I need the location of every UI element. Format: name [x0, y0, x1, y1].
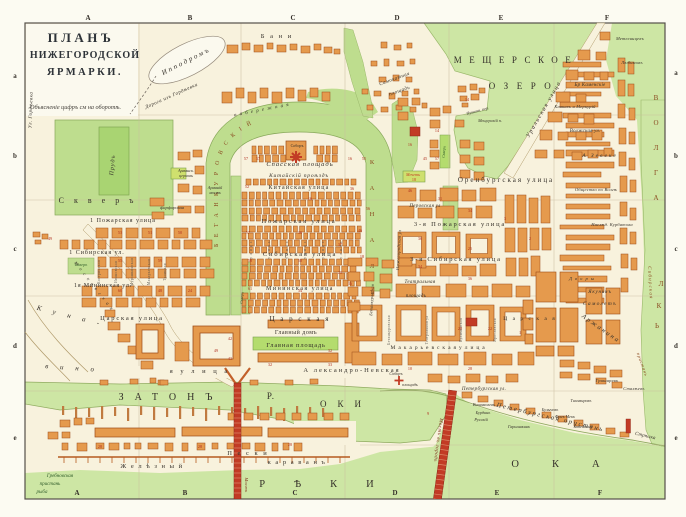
svg-text:Объясненіе цифръ см на оборотѣ: Объясненіе цифръ см на оборотѣ. — [30, 104, 121, 111]
svg-text:рыба: рыба — [36, 490, 48, 495]
svg-text:Наслѣд. Курбатова: Наслѣд. Курбатова — [590, 222, 633, 227]
svg-text:42: 42 — [228, 336, 232, 341]
svg-text:d: d — [674, 342, 678, 350]
svg-text:Вишомолевъ: Вишомолевъ — [473, 402, 496, 407]
svg-text:Ц а р с к а я: Ц а р с к а я — [270, 315, 331, 323]
svg-text:Гребновская: Гребновская — [46, 474, 74, 479]
svg-text:Костринская: Костринская — [97, 260, 101, 284]
svg-text:50: 50 — [178, 230, 182, 235]
svg-text:А Зевеке: А Зевеке — [581, 153, 618, 159]
svg-text:ЗАТОНЪ: ЗАТОНЪ — [119, 392, 224, 403]
svg-text:Любимовъ: Любимовъ — [620, 60, 643, 65]
svg-text:57: 57 — [244, 156, 248, 161]
svg-text:Русскій: Русскій — [473, 417, 488, 422]
svg-text:3-я Пожарская улица: 3-я Пожарская улица — [414, 221, 506, 228]
svg-text:ОЗЕРО: ОЗЕРО — [489, 81, 560, 91]
svg-text:1 Сибирская ул.: 1 Сибирская ул. — [69, 249, 125, 256]
svg-text:18: 18 — [360, 254, 364, 259]
svg-text:Бетанкуровская: Бетанкуровская — [387, 315, 391, 345]
svg-text:32: 32 — [268, 362, 272, 367]
svg-text:Общество по Волгѣ: Общество по Волгѣ — [575, 187, 617, 192]
svg-text:В: В — [183, 489, 188, 497]
svg-text:Ь: Ь — [655, 322, 659, 330]
svg-text:МЕЩЕРСКОЕ: МЕЩЕРСКОЕ — [454, 55, 578, 65]
svg-text:43: 43 — [228, 356, 232, 361]
svg-text:C: C — [290, 14, 295, 22]
svg-text:E: E — [499, 14, 504, 22]
svg-text:28: 28 — [198, 444, 202, 449]
svg-text:Волжская ул.: Волжская ул. — [570, 129, 601, 134]
svg-text:36: 36 — [348, 281, 352, 286]
svg-text:Театральная ул: Театральная ул — [425, 316, 429, 345]
svg-text:36: 36 — [418, 236, 422, 241]
svg-text:Театральная: Театральная — [405, 280, 436, 285]
svg-text:Кавказъ и Меркурій: Кавказъ и Меркурій — [553, 104, 596, 109]
svg-text:Гришаревъ: Гришаревъ — [595, 378, 619, 383]
svg-text:фарфоровая: фарфоровая — [160, 205, 184, 210]
svg-text:ОКИ: ОКИ — [320, 399, 372, 409]
svg-text:59: 59 — [158, 258, 162, 263]
svg-text:52: 52 — [245, 184, 249, 189]
svg-text:мостъ: мостъ — [208, 190, 222, 195]
svg-text:Перовская ул: Перовская ул — [408, 204, 440, 209]
svg-text:Мостъ: Мостъ — [244, 476, 249, 492]
svg-text:Главный домъ: Главный домъ — [275, 329, 317, 336]
svg-text:F: F — [605, 14, 609, 22]
svg-text:28: 28 — [468, 366, 472, 371]
svg-text:Г: Г — [654, 169, 658, 177]
svg-text:Метелинцевъ: Метелинцевъ — [615, 36, 644, 41]
svg-text:A: A — [85, 14, 90, 22]
svg-text:B: B — [188, 14, 193, 22]
svg-text:а: а — [13, 72, 17, 80]
svg-text:Е: Е — [495, 489, 500, 497]
svg-text:b: b — [13, 152, 17, 160]
svg-text:А лександро-Невская: А лександро-Невская — [303, 367, 400, 374]
svg-text:32: 32 — [328, 348, 332, 353]
svg-text:Сибирская улица: Сибирская улица — [263, 251, 337, 258]
svg-text:Бр Каменскіе: Бр Каменскіе — [574, 83, 607, 88]
svg-text:46: 46 — [408, 188, 412, 193]
svg-text:57: 57 — [246, 230, 250, 235]
svg-text:у л и ц а: у л и ц а — [285, 241, 289, 259]
svg-text:Стахѣевъ: Стахѣевъ — [623, 386, 645, 391]
svg-text:А: А — [370, 237, 375, 244]
svg-text:НИЖЕГОРОДСКОЙ: НИЖЕГОРОДСКОЙ — [30, 49, 140, 61]
svg-text:28: 28 — [98, 444, 102, 449]
svg-text:36: 36 — [468, 276, 472, 281]
svg-text:у л и ц а: у л и ц а — [339, 241, 343, 259]
svg-text:Царская улица: Царская улица — [100, 315, 164, 322]
svg-text:25: 25 — [338, 270, 342, 275]
svg-text:Ивановская: Ивановская — [114, 261, 118, 283]
svg-text:F: F — [598, 489, 602, 497]
svg-text:18: 18 — [412, 177, 416, 182]
svg-text:1 Пожарская улица: 1 Пожарская улица — [90, 218, 156, 224]
svg-text:1я Мининская ул.: 1я Мининская ул. — [74, 283, 132, 289]
svg-text:Пожарская улица: Пожарская улица — [262, 218, 337, 225]
svg-text:Бурдинъ: Бурдинъ — [475, 410, 492, 415]
svg-text:9: 9 — [427, 411, 429, 416]
svg-text:К: К — [370, 159, 375, 166]
svg-text:16: 16 — [348, 156, 352, 161]
svg-text:Б а н и: Б а н и — [261, 33, 293, 40]
svg-text:Скверъ: Скверъ — [440, 146, 446, 159]
svg-text:В: В — [654, 94, 659, 102]
svg-text:10: 10 — [408, 366, 412, 371]
svg-text:у л и ц а: у л и ц а — [321, 241, 325, 259]
svg-text:Н: Н — [370, 211, 375, 218]
svg-text:А: А — [74, 489, 79, 497]
svg-text:К: К — [657, 302, 662, 310]
svg-text:Тихомировъ: Тихомировъ — [571, 398, 593, 403]
svg-text:Китайская улица: Китайская улица — [268, 184, 329, 191]
svg-text:36: 36 — [350, 186, 354, 191]
svg-text:Д в о р ы: Д в о р ы — [568, 276, 595, 281]
svg-text:церковь: церковь — [179, 173, 193, 178]
svg-text:53: 53 — [118, 230, 122, 235]
svg-text:29: 29 — [458, 326, 462, 331]
svg-text:О: О — [653, 119, 658, 127]
svg-text:Петербургская ул.: Петербургская ул. — [461, 387, 506, 392]
svg-text:у л и ц а: у л и ц а — [267, 241, 271, 259]
svg-text:площадь: площадь — [406, 294, 427, 299]
svg-text:b: b — [674, 152, 678, 160]
svg-text:25: 25 — [468, 246, 472, 251]
svg-text:Китайскій проѣздъ: Китайскій проѣздъ — [268, 172, 329, 179]
svg-text:М а к а р ь е в с к а я у л: М а к а р ь е в с к а я у л и ц а — [390, 345, 485, 351]
svg-text:Булычевъ: Булычевъ — [541, 407, 559, 412]
svg-text:61: 61 — [248, 286, 252, 291]
svg-text:ПЛАНЪ: ПЛАНЪ — [48, 30, 115, 45]
svg-text:16: 16 — [408, 142, 412, 147]
svg-text:60: 60 — [118, 288, 122, 293]
svg-text:3: 3 — [504, 216, 506, 221]
svg-text:у л и ц а: у л и ц а — [303, 241, 307, 259]
svg-text:у л и ц а: у л и ц а — [249, 241, 253, 259]
svg-text:А: А — [653, 194, 658, 202]
svg-text:28: 28 — [288, 442, 292, 447]
svg-text:С к в е р ъ: С к в е р ъ — [59, 196, 138, 205]
svg-text:1: 1 — [519, 330, 521, 335]
svg-text:Мещерскій п.: Мещерскій п. — [477, 118, 502, 123]
svg-text:49: 49 — [48, 236, 52, 241]
svg-text:22: 22 — [488, 326, 492, 331]
svg-text:ОКА: ОКА — [511, 459, 632, 470]
svg-text:e: e — [674, 434, 677, 442]
svg-text:Спасская площадь: Спасская площадь — [266, 161, 333, 168]
svg-text:31: 31 — [438, 196, 442, 201]
svg-text:58: 58 — [298, 258, 302, 263]
svg-text:d: d — [13, 342, 17, 350]
svg-text:Самолетъ: Самолетъ — [583, 301, 617, 307]
svg-text:55: 55 — [362, 156, 366, 161]
svg-text:Макарьевская: Макарьевская — [147, 259, 151, 285]
svg-text:16: 16 — [308, 196, 312, 201]
svg-text:45: 45 — [423, 156, 427, 161]
svg-text:Главная площадь: Главная площадь — [266, 342, 326, 349]
svg-text:49: 49 — [214, 348, 218, 353]
svg-text:Ярославская: Ярославская — [493, 318, 497, 342]
svg-text:48: 48 — [158, 288, 162, 293]
svg-text:пристань: пристань — [40, 482, 61, 487]
svg-text:Соборъ: Соборъ — [291, 143, 304, 148]
svg-text:ЯРМАРКИ.: ЯРМАРКИ. — [47, 67, 123, 78]
svg-text:Мурашкинская: Мурашкинская — [130, 258, 134, 286]
svg-text:Л: Л — [370, 263, 375, 270]
svg-text:Оренбургская улица: Оренбургская улица — [458, 176, 554, 184]
svg-text:37: 37 — [256, 156, 260, 161]
svg-text:51: 51 — [148, 230, 152, 235]
svg-text:С: С — [292, 489, 297, 497]
svg-text:Троицкая: Троицкая — [163, 263, 167, 281]
svg-text:D: D — [394, 14, 399, 22]
svg-text:57: 57 — [435, 156, 439, 161]
svg-text:e: e — [13, 434, 16, 442]
svg-text:А: А — [370, 185, 375, 192]
svg-text:Гаршинкинъ: Гаршинкинъ — [507, 424, 531, 429]
svg-text:2: 2 — [529, 236, 531, 241]
svg-text:Ц а р с к а я: Ц а р с к а я — [503, 316, 557, 322]
svg-text:Скверъ: Скверъ — [238, 292, 244, 305]
svg-text:к а р а в а н ъ: к а р а в а н ъ — [268, 459, 327, 466]
svg-text:Якунинъ: Якунинъ — [587, 290, 612, 295]
svg-text:56: 56 — [366, 206, 370, 211]
svg-text:D: D — [392, 489, 397, 497]
svg-text:а: а — [674, 69, 678, 77]
svg-text:36: 36 — [298, 230, 302, 235]
svg-text:площадь: площадь — [402, 382, 418, 387]
svg-text:46: 46 — [358, 228, 362, 233]
svg-text:3-я Сибирская улица: 3-я Сибирская улица — [410, 256, 502, 263]
svg-text:Ж е л ѣ з н ы й: Ж е л ѣ з н ы й — [120, 463, 183, 470]
svg-text:c: c — [674, 245, 677, 253]
svg-text:Р.: Р. — [267, 391, 275, 401]
svg-text:33: 33 — [328, 362, 332, 367]
svg-text:РѢКИ: РѢКИ — [259, 479, 402, 490]
svg-text:55: 55 — [118, 258, 122, 263]
svg-text:П е с к и: П е с к и — [227, 450, 269, 457]
svg-text:Л: Л — [654, 144, 659, 152]
svg-text:Л: Л — [659, 280, 664, 288]
svg-text:я у л и ц а: я у л и ц а — [170, 368, 230, 375]
svg-text:c: c — [13, 245, 16, 253]
